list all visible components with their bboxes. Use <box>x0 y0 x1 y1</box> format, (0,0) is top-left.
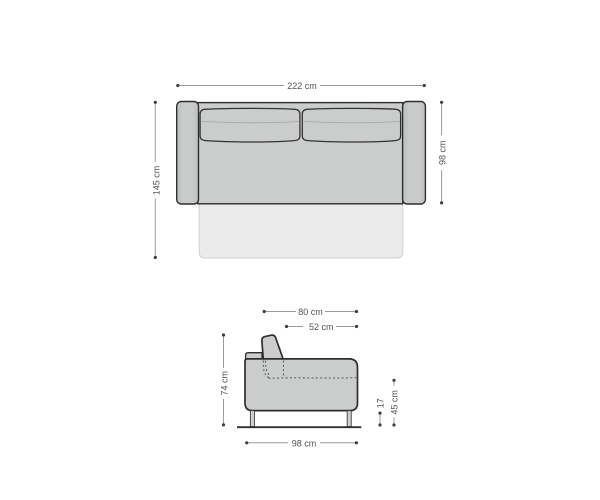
svg-text:17: 17 <box>375 398 385 408</box>
svg-text:98 cm: 98 cm <box>438 140 448 165</box>
svg-text:45 cm: 45 cm <box>389 390 399 415</box>
svg-text:222 cm: 222 cm <box>287 81 317 91</box>
svg-text:98 cm: 98 cm <box>292 438 317 448</box>
svg-text:74 cm: 74 cm <box>220 371 230 396</box>
svg-text:145 cm: 145 cm <box>151 166 161 196</box>
svg-text:52 cm: 52 cm <box>309 322 334 332</box>
svg-text:80 cm: 80 cm <box>298 307 323 317</box>
